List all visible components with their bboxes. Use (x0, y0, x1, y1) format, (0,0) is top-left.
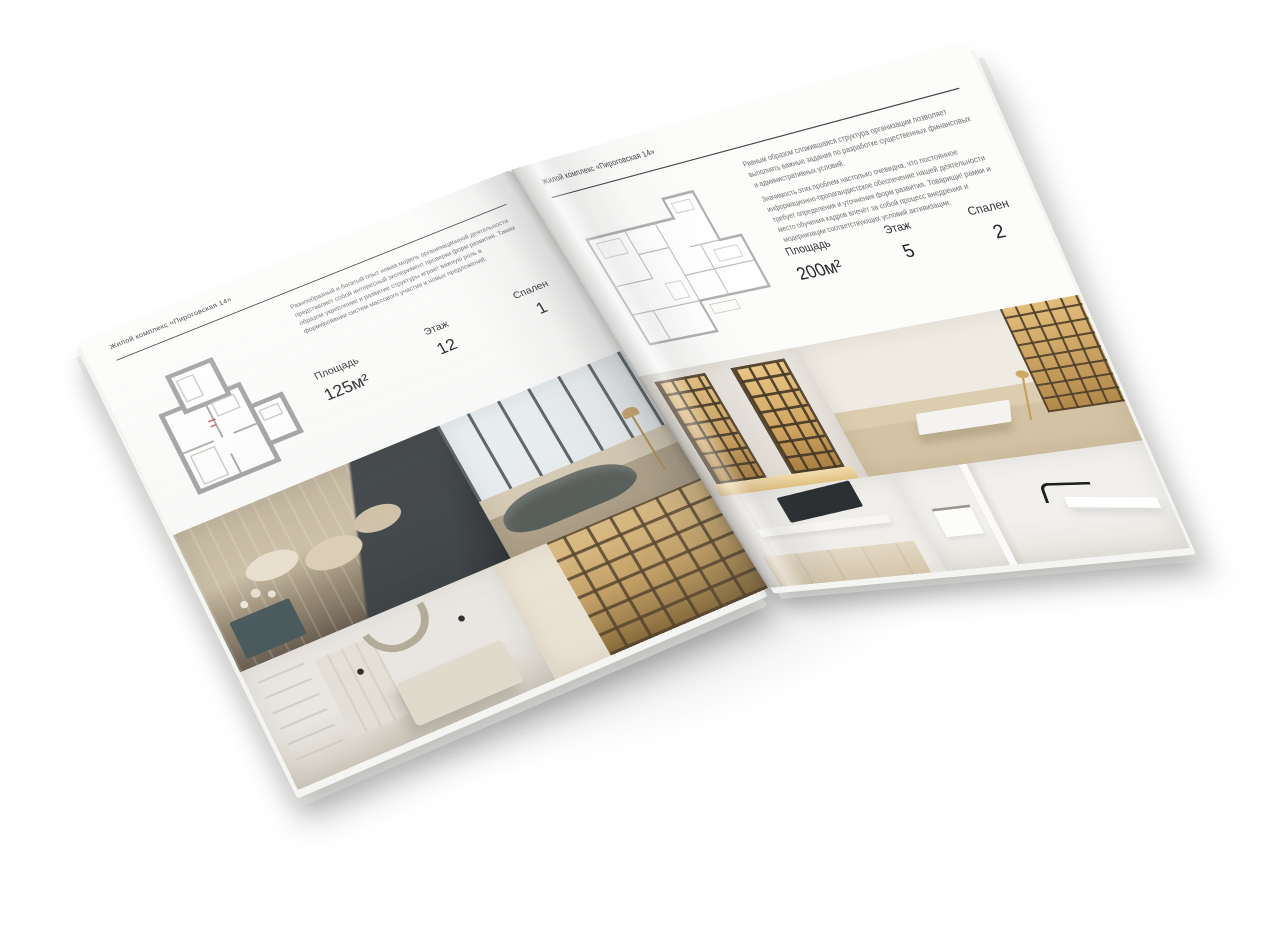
floor-lamp-shape (631, 415, 666, 470)
stat-floor: Этаж 5 (881, 219, 926, 264)
stat-floor: Этаж 12 (422, 319, 464, 360)
stat-bedrooms: Спален 1 (511, 278, 564, 323)
sink-counter-shape (1064, 497, 1162, 508)
stat-area: Площадь 200м² (783, 237, 847, 285)
desk-shape (915, 399, 1011, 434)
stat-floor-label: Этаж (422, 319, 451, 338)
right-page-title: Жилой комплекс «Пироговская 14» (540, 147, 657, 187)
magazine-mockup-scene: Жилой комплекс «Пироговская 14» Разнообр… (0, 0, 1280, 835)
stat-bedrooms-value: 1 (520, 293, 564, 323)
gold-lamp-shape (1021, 372, 1032, 420)
stat-bedrooms: Спален 2 (965, 197, 1024, 247)
stat-area: Площадь 125м² (312, 355, 373, 405)
stat-floor-value: 5 (891, 239, 927, 265)
stat-bedrooms-value: 2 (975, 217, 1025, 247)
towel-shape (932, 505, 984, 537)
stat-area-value: 200м² (793, 256, 847, 285)
cooktop-shape (776, 481, 862, 523)
stat-floor-value: 12 (431, 334, 464, 360)
sconce-shape (457, 614, 466, 622)
counter-shape (758, 515, 892, 538)
